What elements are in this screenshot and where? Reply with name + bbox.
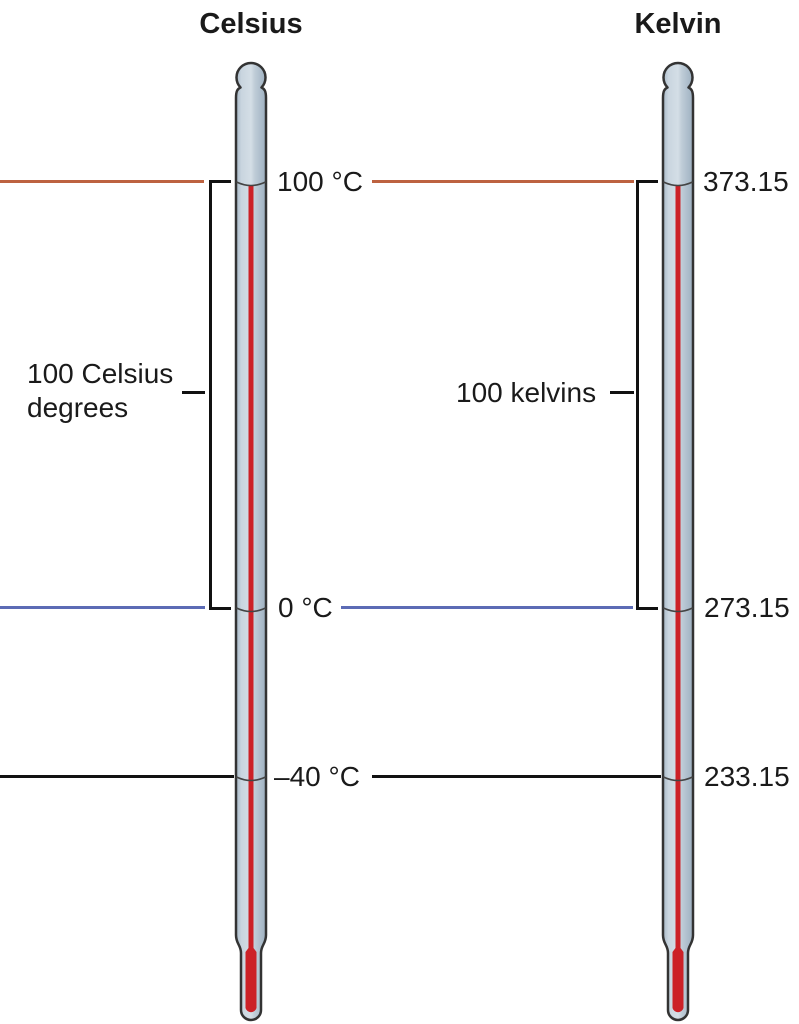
thermometer-comparison-figure: Celsius Kelvin 100 °C 373.15 0 °C 273.15… [0,0,799,1024]
kelvin-thermometer [652,60,704,1024]
kelvin-interval-dash [610,391,634,394]
minus40-line-middle-segment [372,775,661,778]
celsius-boiling-label: 100 °C [277,168,363,196]
boiling-line-left-segment [0,180,204,183]
celsius-interval-label-line2: degrees [27,391,173,425]
kelvin-freezing-label: 273.15 [704,594,790,622]
kelvin-bracket-vertical [636,180,639,610]
celsius-bracket-vertical [209,180,212,610]
freezing-line-middle-segment [341,606,633,609]
freezing-line-left-segment [0,606,205,609]
celsius-interval-dash [182,391,205,394]
kelvin-minus40-label: 233.15 [704,763,790,791]
minus40-line-left-segment [0,775,234,778]
boiling-line-middle-segment [372,180,634,183]
celsius-scale-title: Celsius [199,8,302,41]
celsius-minus40-label: –40 °C [274,763,360,791]
celsius-interval-label-line1: 100 Celsius [27,357,173,391]
kelvin-interval-label: 100 kelvins [456,379,596,407]
celsius-interval-label: 100 Celsius degrees [27,357,173,425]
kelvin-boiling-label: 373.15 [703,168,789,196]
celsius-thermometer [225,60,277,1024]
kelvin-scale-title: Kelvin [634,8,721,41]
celsius-freezing-label: 0 °C [278,594,333,622]
